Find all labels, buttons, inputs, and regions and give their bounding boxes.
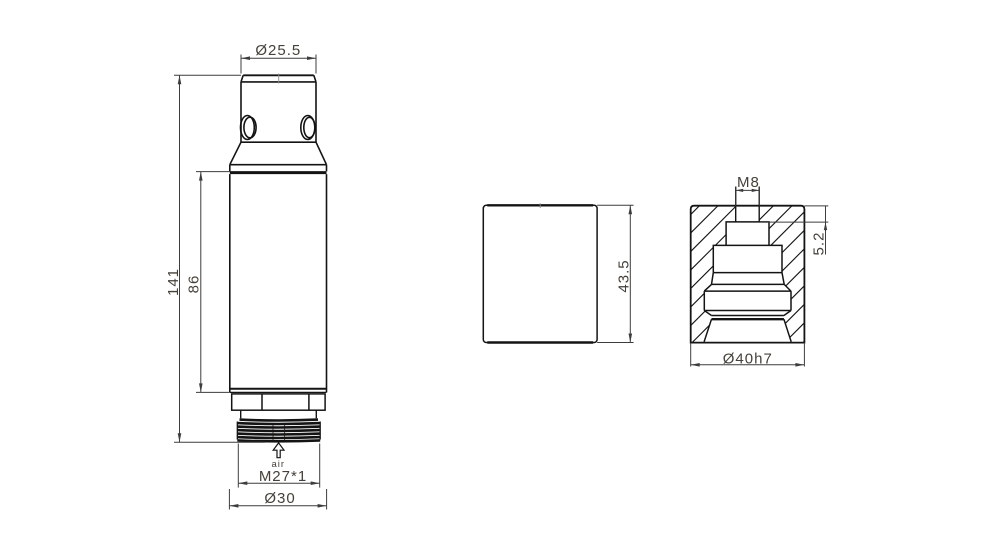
svg-text:5.2: 5.2 — [811, 232, 828, 256]
svg-text:Ø30: Ø30 — [264, 490, 295, 507]
svg-text:141: 141 — [165, 268, 182, 296]
svg-text:Ø25.5: Ø25.5 — [255, 42, 301, 59]
svg-text:43.5: 43.5 — [616, 259, 633, 292]
svg-text:M8: M8 — [737, 174, 760, 191]
svg-text:Ø40h7: Ø40h7 — [723, 350, 773, 367]
svg-text:M27*1: M27*1 — [259, 468, 307, 485]
svg-text:86: 86 — [186, 275, 203, 294]
